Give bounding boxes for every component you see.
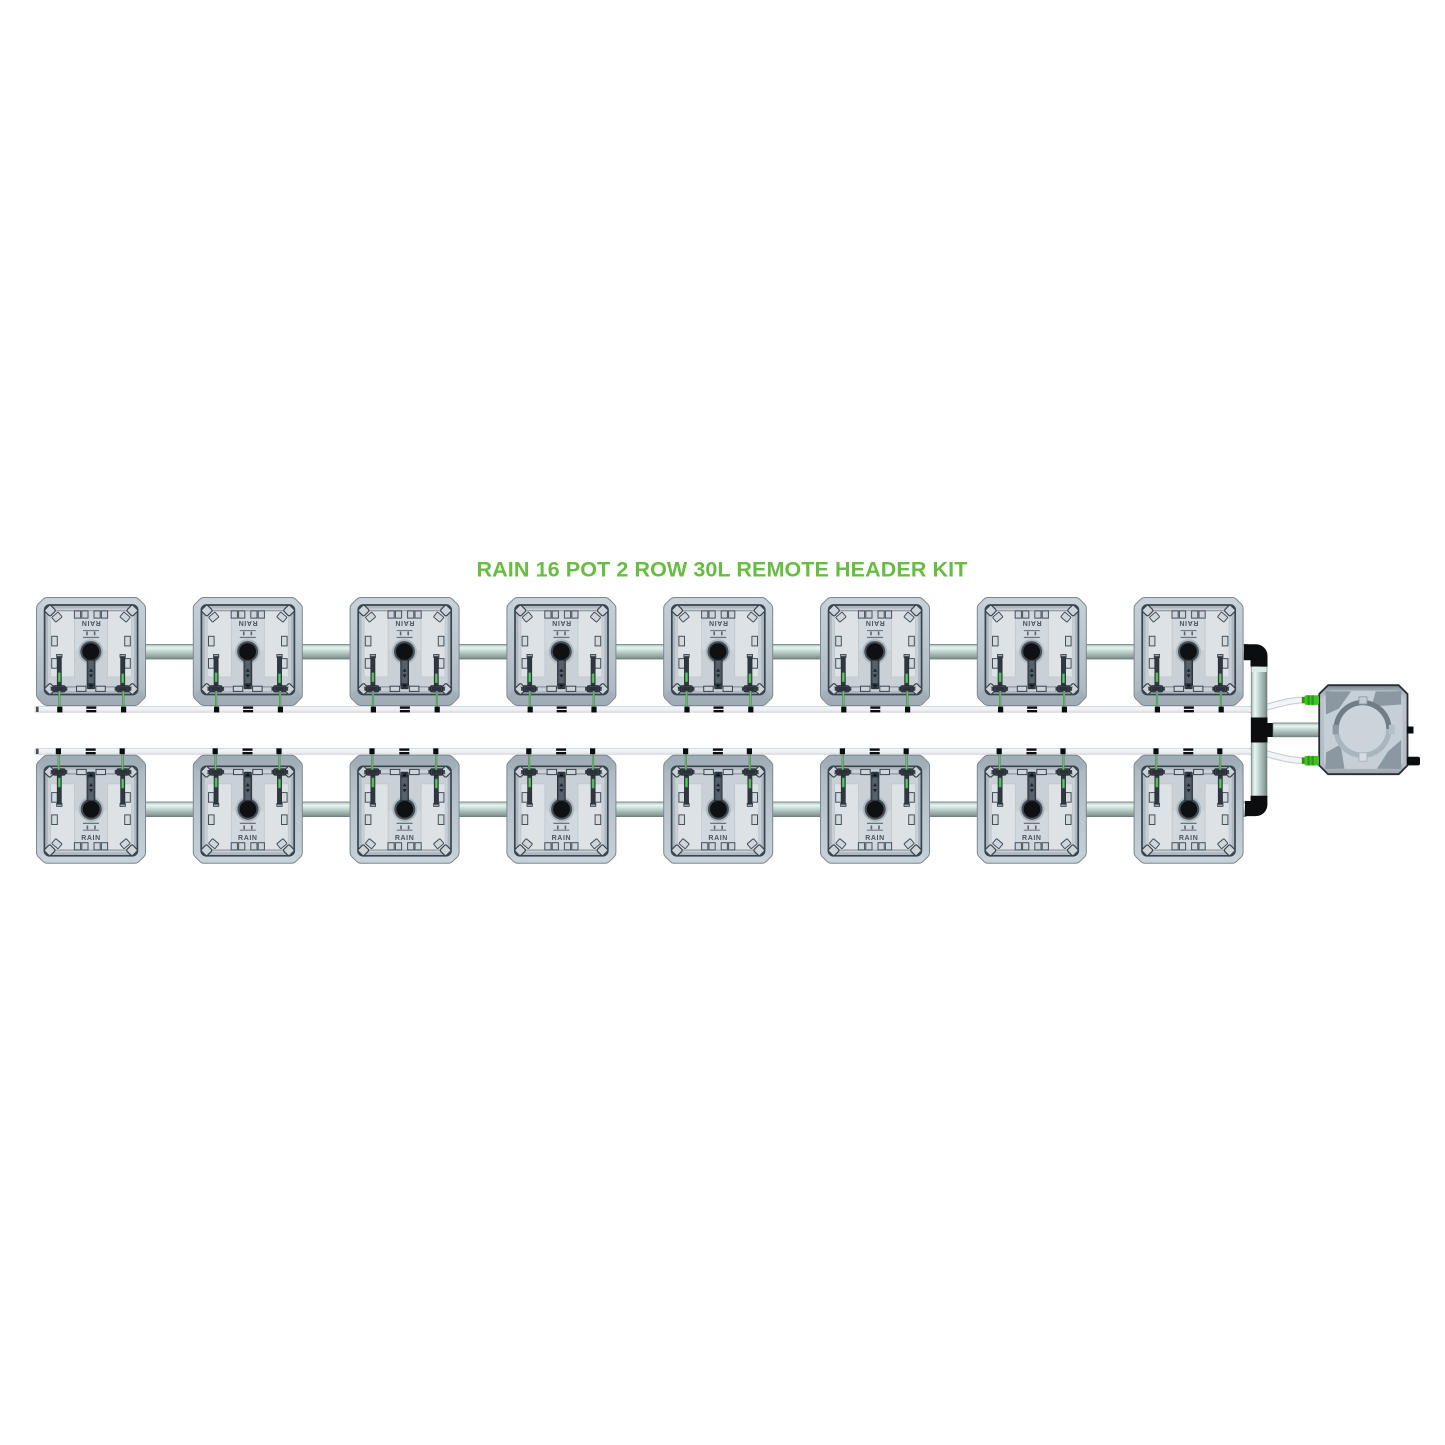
svg-text:RAIN 16 POT 2 ROW 30L REMOTE H: RAIN 16 POT 2 ROW 30L REMOTE HEADER KIT	[477, 558, 968, 582]
